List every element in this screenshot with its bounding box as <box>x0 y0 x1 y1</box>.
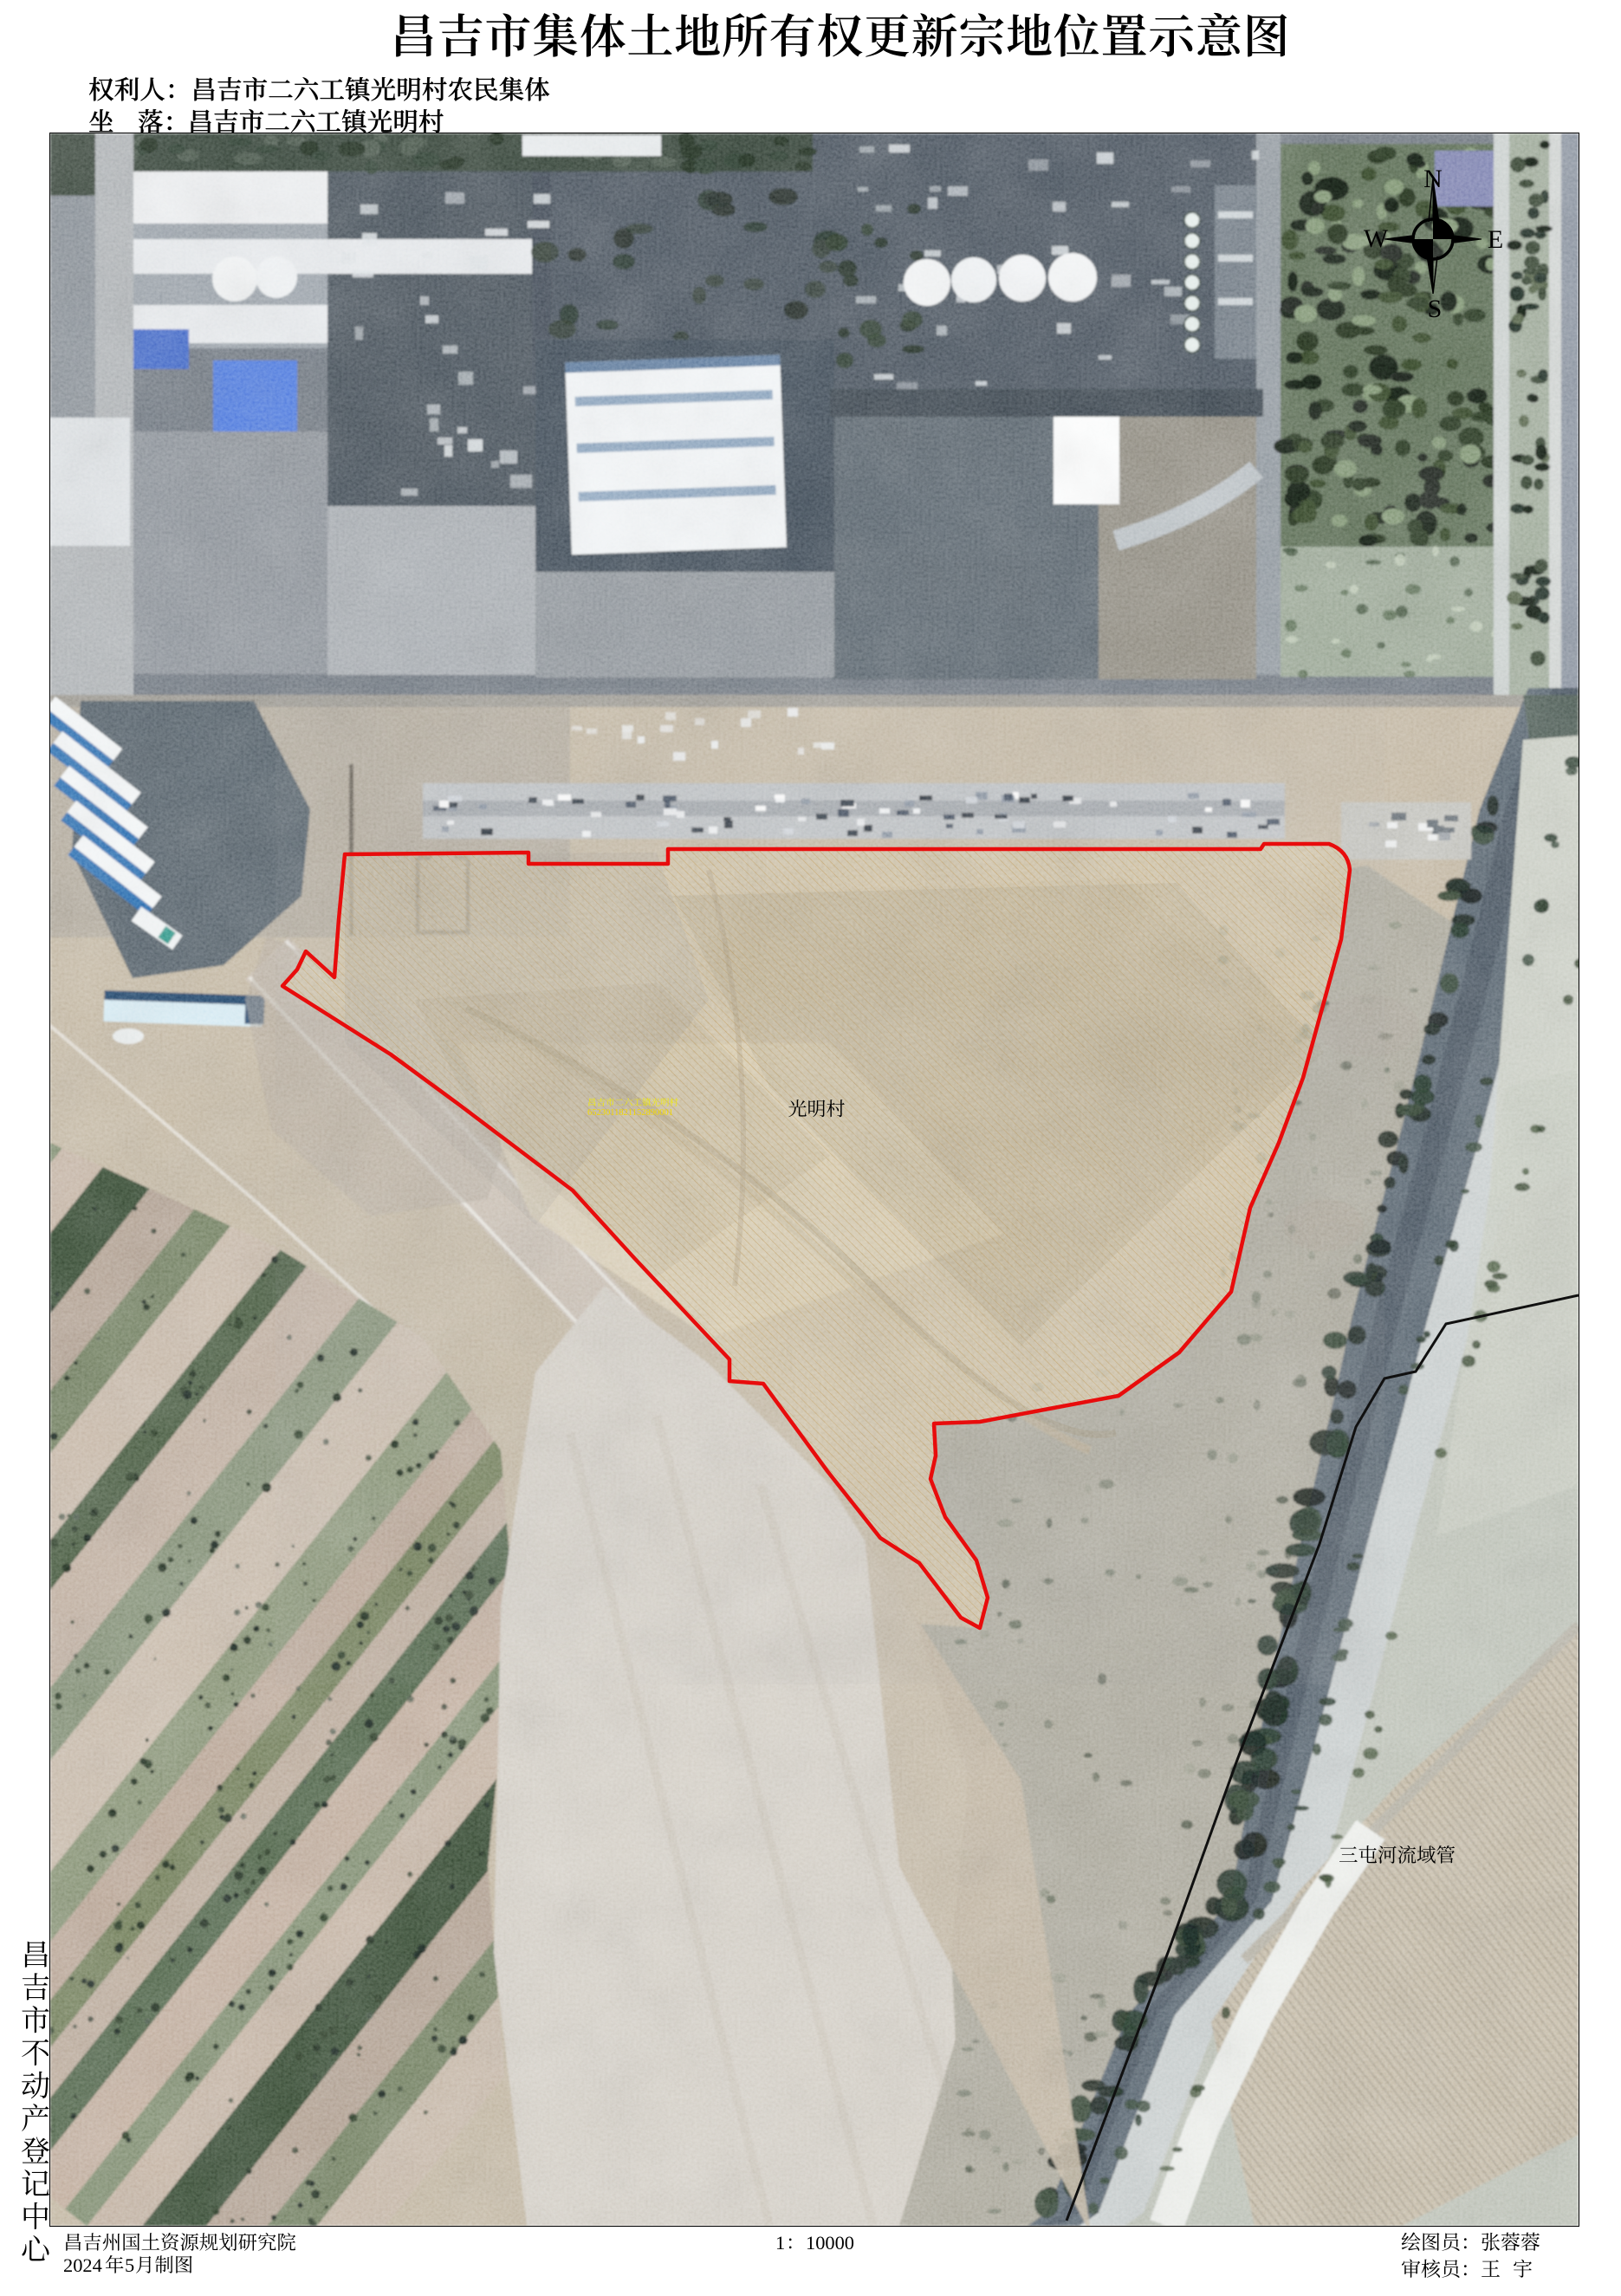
svg-text:5: 5 <box>125 2254 134 2276</box>
svg-text:2024: 2024 <box>63 2254 102 2276</box>
svg-text:1: 1 <box>775 2232 785 2254</box>
svg-text:10000: 10000 <box>806 2232 854 2254</box>
